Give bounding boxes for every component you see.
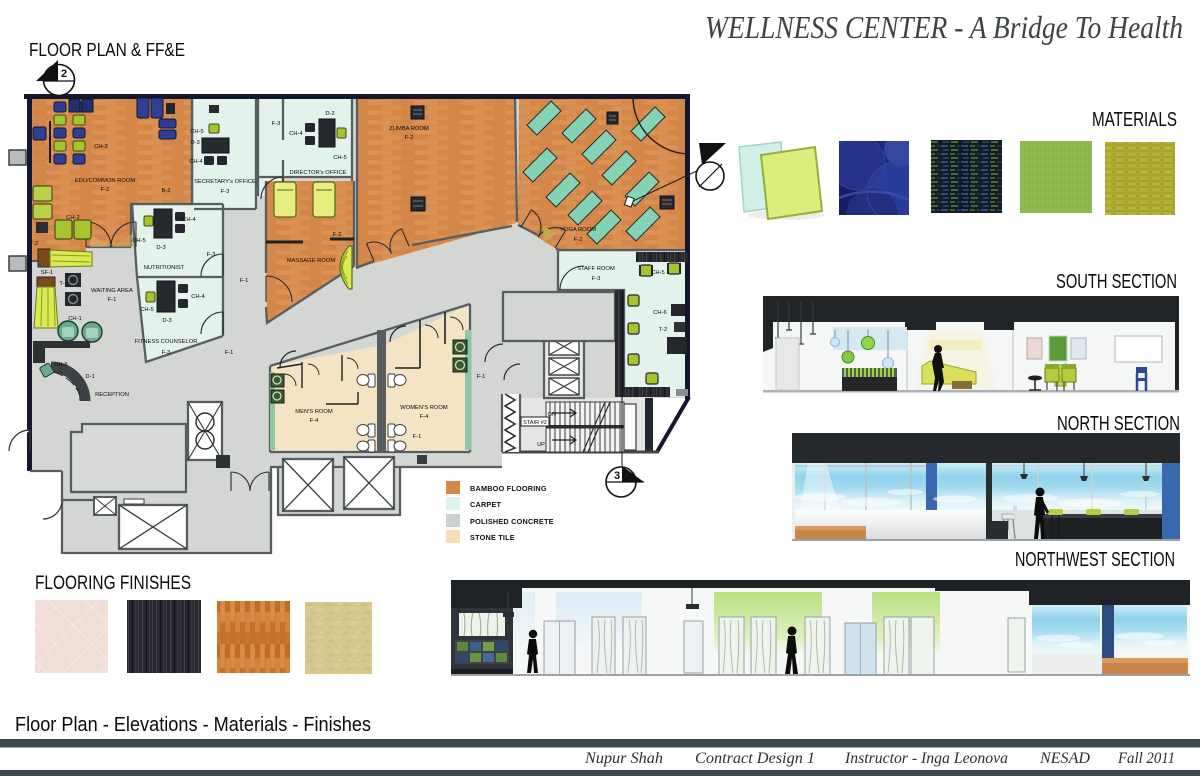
svg-text:STONE TILE: STONE TILE [470, 533, 515, 542]
svg-text:SECRETARY's OFFICE: SECRETARY's OFFICE [194, 179, 256, 185]
svg-text:SOUTH SECTION: SOUTH SECTION [1056, 271, 1177, 293]
svg-text:YOGA ROOM: YOGA ROOM [560, 227, 596, 233]
svg-text:T-: T- [59, 281, 64, 287]
svg-text:F-1: F-1 [413, 434, 422, 440]
svg-text:DN: DN [548, 412, 556, 418]
svg-text:D-3: D-3 [156, 245, 165, 251]
svg-text:D-3: D-3 [162, 318, 171, 324]
svg-text:NORTHWEST SECTION: NORTHWEST SECTION [1015, 549, 1175, 571]
svg-text:POLISHED CONCRETE: POLISHED CONCRETE [470, 517, 554, 526]
svg-text:SF-1: SF-1 [41, 270, 54, 276]
svg-text:FLOORING FINISHES: FLOORING FINISHES [35, 572, 191, 594]
svg-text:CH-5: CH-5 [190, 129, 204, 135]
svg-text:FLOOR PLAN & FF&E: FLOOR PLAN & FF&E [29, 40, 185, 60]
svg-text:RECEPTION: RECEPTION [95, 392, 129, 398]
svg-text:F-4: F-4 [420, 414, 429, 420]
svg-text:F-3: F-3 [162, 350, 171, 356]
svg-text:UP: UP [537, 442, 545, 448]
svg-text:STAIR #2: STAIR #2 [523, 420, 547, 426]
svg-text:Floor Plan - Elevations - Mate: Floor Plan - Elevations - Materials - Fi… [15, 713, 371, 736]
svg-text:CH-2: CH-2 [66, 215, 80, 221]
svg-text:DIRECTOR's OFFICE: DIRECTOR's OFFICE [289, 170, 346, 176]
svg-text:FITNESS COUNSELOR: FITNESS COUNSELOR [135, 339, 198, 345]
svg-text:MEN'S ROOM: MEN'S ROOM [295, 409, 333, 415]
svg-text:F-2: F-2 [405, 135, 414, 141]
svg-text:NESAD: NESAD [1039, 750, 1090, 767]
svg-text:F-3: F-3 [221, 189, 230, 195]
svg-text:D-2: D-2 [325, 111, 334, 117]
svg-text:F-1: F-1 [108, 297, 117, 303]
svg-text:CH-4: CH-4 [189, 159, 203, 165]
svg-text:D-3: D-3 [190, 140, 199, 146]
svg-text:CH-4: CH-4 [182, 217, 196, 223]
svg-text:CH-1: CH-1 [68, 316, 82, 322]
svg-text:F-2: F-2 [333, 232, 342, 238]
svg-text:F-1: F-1 [240, 278, 249, 284]
svg-text:CH-5: CH-5 [132, 238, 146, 244]
svg-text:Instructor - Inga Leonova: Instructor - Inga Leonova [844, 750, 1008, 767]
svg-text:F-3: F-3 [272, 121, 281, 127]
svg-text:Fall 2011: Fall 2011 [1117, 750, 1175, 767]
svg-text:CH-5: CH-5 [140, 307, 154, 313]
svg-text:EDU/COMMON ROOM: EDU/COMMON ROOM [75, 178, 136, 184]
svg-text:F-2: F-2 [101, 187, 110, 193]
svg-text:CH-5: CH-5 [651, 270, 665, 276]
svg-text:CH-4: CH-4 [191, 294, 205, 300]
svg-text:WELLNESS CENTER - A Bridge To: WELLNESS CENTER - A Bridge To Health [705, 9, 1183, 45]
svg-text:CH-5: CH-5 [333, 155, 347, 161]
svg-text:CARPET: CARPET [470, 500, 502, 509]
svg-text:NORTH SECTION: NORTH SECTION [1057, 413, 1180, 435]
svg-text:T-2: T-2 [30, 241, 38, 247]
svg-text:CH-3: CH-3 [94, 144, 108, 150]
svg-text:F-1: F-1 [225, 350, 234, 356]
svg-text:MASSAGE ROOM: MASSAGE ROOM [287, 258, 335, 264]
svg-text:CH-5: CH-5 [54, 362, 68, 368]
svg-text:CH-6: CH-6 [653, 310, 667, 316]
svg-text:F-3: F-3 [592, 276, 601, 282]
svg-text:MATERIALS: MATERIALS [1092, 109, 1177, 131]
svg-text:Contract Design 1: Contract Design 1 [695, 750, 815, 767]
svg-text:ZUMBA ROOM: ZUMBA ROOM [389, 126, 429, 132]
svg-text:F-1: F-1 [477, 374, 486, 380]
svg-text:3: 3 [614, 470, 620, 482]
svg-text:WOMEN'S ROOM: WOMEN'S ROOM [400, 405, 448, 411]
svg-text:CH-4: CH-4 [289, 131, 303, 137]
svg-text:T-2: T-2 [659, 327, 667, 333]
svg-text:F-2: F-2 [574, 237, 583, 243]
svg-text:WAITING AREA: WAITING AREA [91, 288, 133, 294]
svg-text:F-3: F-3 [207, 252, 216, 258]
svg-text:STAFF ROOM: STAFF ROOM [577, 266, 615, 272]
svg-text:D-1: D-1 [85, 374, 94, 380]
svg-text:2: 2 [61, 68, 67, 80]
svg-text:B-2: B-2 [161, 188, 170, 194]
svg-text:NUTRITIONIST: NUTRITIONIST [144, 265, 185, 271]
svg-text:Nupur Shah: Nupur Shah [584, 750, 663, 767]
svg-text:F-4: F-4 [310, 418, 319, 424]
svg-text:BAMBOO FLOORING: BAMBOO FLOORING [470, 484, 547, 493]
